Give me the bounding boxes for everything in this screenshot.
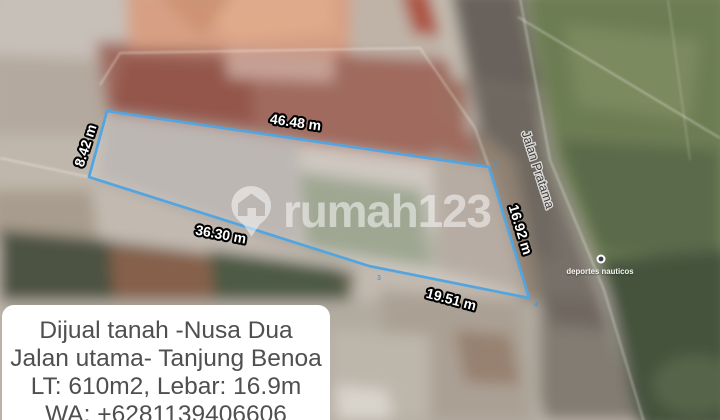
svg-text:deportes nauticos: deportes nauticos [566,267,634,276]
svg-text:3: 3 [377,275,381,282]
svg-text:4: 4 [534,302,538,309]
svg-text:rumah123: rumah123 [283,185,491,237]
svg-text:5: 5 [494,161,498,168]
